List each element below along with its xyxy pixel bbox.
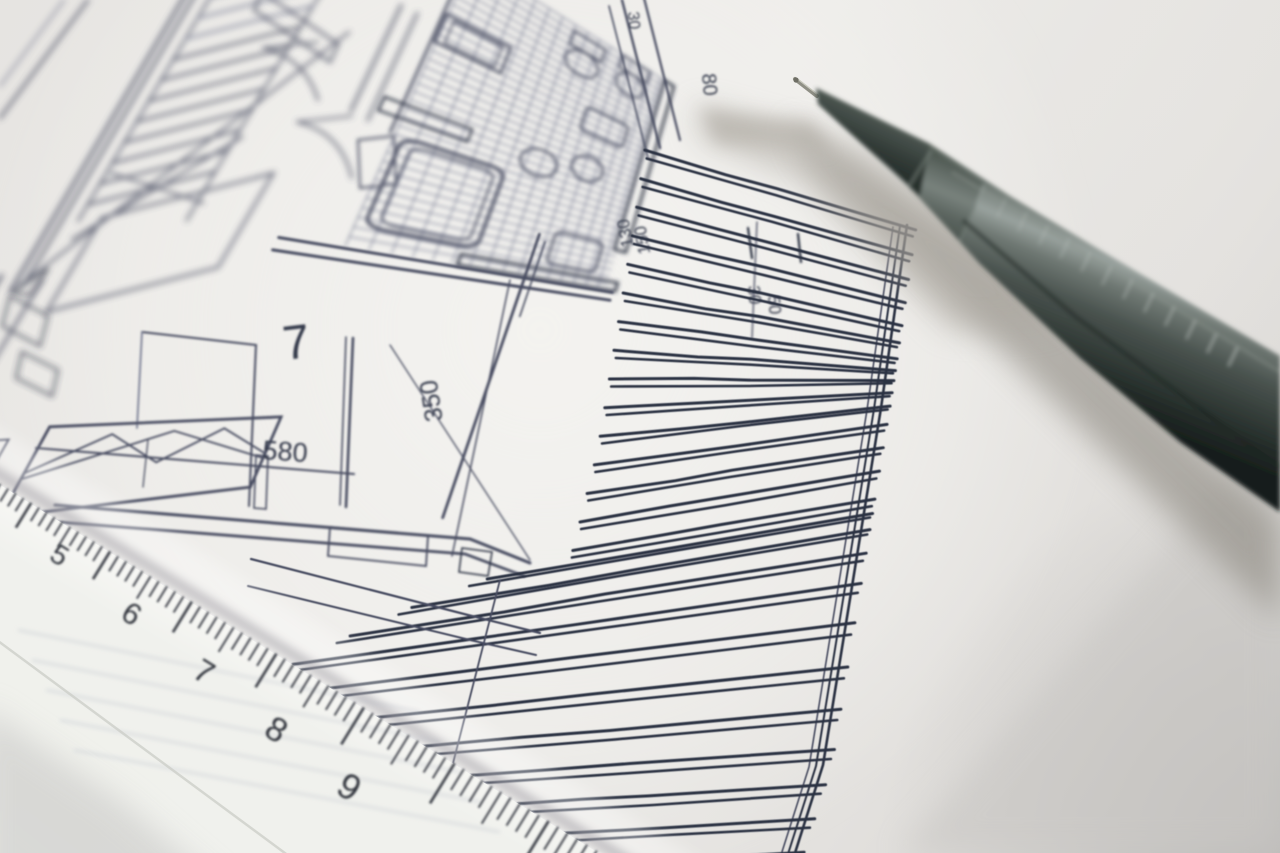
svg-text:580: 580 — [262, 435, 309, 468]
svg-text:30: 30 — [624, 11, 642, 30]
svg-text:80: 80 — [697, 73, 721, 97]
